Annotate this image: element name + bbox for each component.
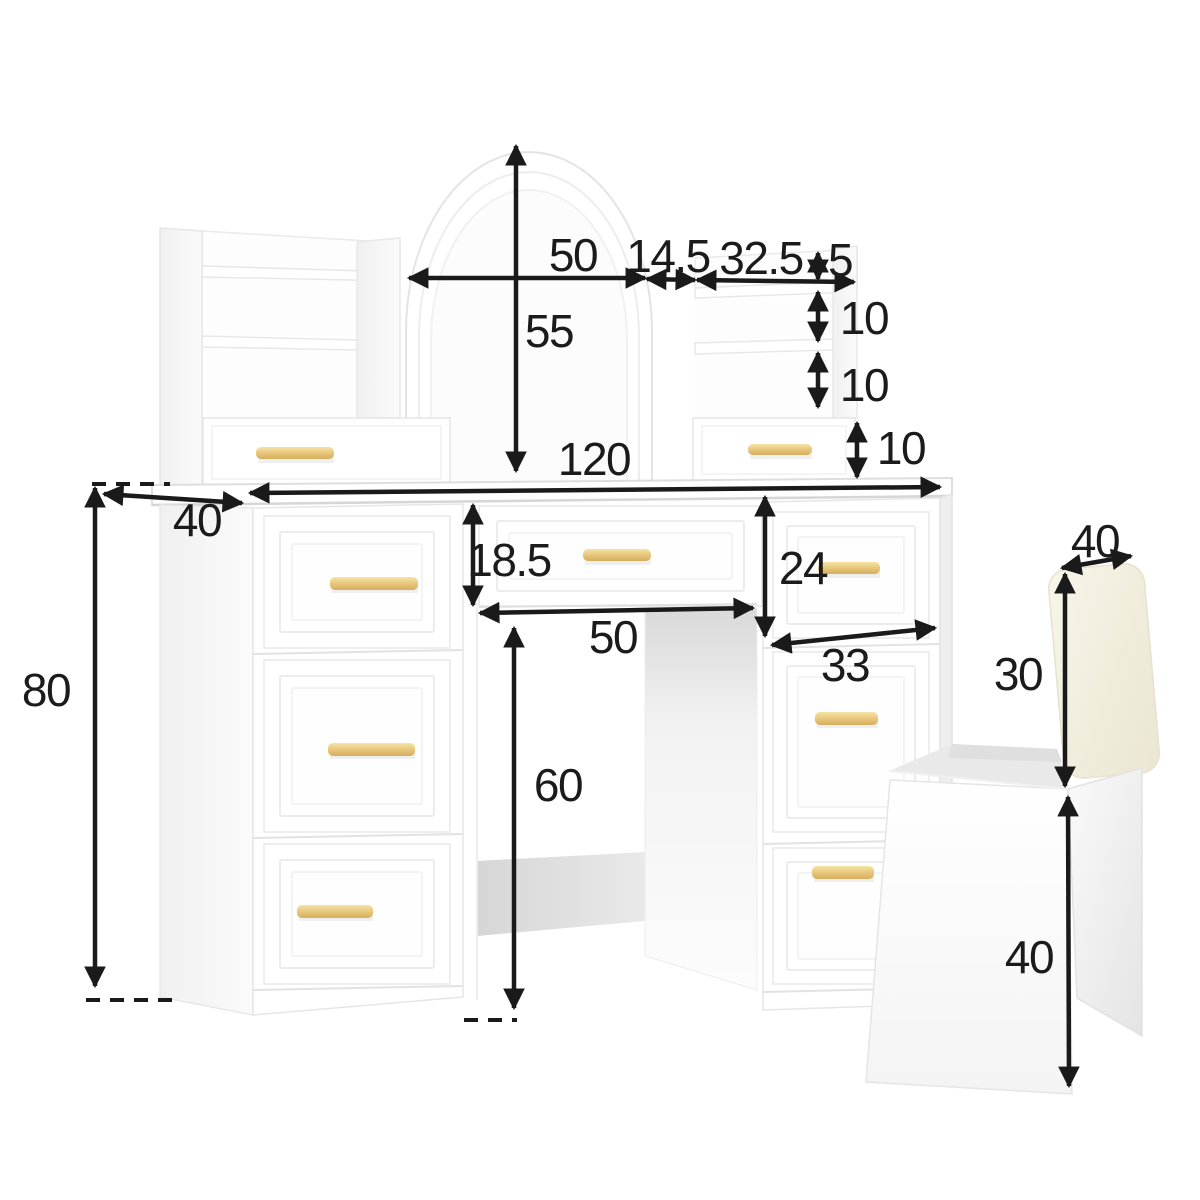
label-right-shelf-width: 32.5 bbox=[719, 235, 803, 281]
label-shelf-gap-upper: 10 bbox=[840, 295, 888, 341]
drawer-handle bbox=[748, 444, 812, 455]
label-desktop-depth: 40 bbox=[173, 497, 221, 543]
label-shelf-gap-lower: 10 bbox=[840, 362, 888, 408]
left-hutch-shelf bbox=[202, 336, 357, 350]
left-pedestal bbox=[160, 504, 463, 1015]
left-hutch-compartment bbox=[202, 347, 357, 417]
label-hutch-drawer-height: 10 bbox=[877, 425, 925, 471]
drawer-handle bbox=[818, 562, 880, 574]
drawer bbox=[264, 516, 450, 648]
label-seat-depth: 40 bbox=[1071, 518, 1119, 564]
label-mirror-height: 55 bbox=[525, 308, 573, 354]
drawer-handle bbox=[328, 743, 415, 756]
label-desk-height: 80 bbox=[22, 667, 70, 713]
drawer-handle bbox=[812, 866, 874, 879]
left-pedestal-side bbox=[160, 505, 253, 1015]
label-stool-height: 40 bbox=[1005, 934, 1053, 980]
drawer-handle bbox=[330, 577, 418, 590]
label-mirror-width: 50 bbox=[549, 232, 597, 278]
right-pedestal-side-panel bbox=[645, 608, 757, 990]
left-hutch-side-panel bbox=[160, 228, 202, 492]
knee-space bbox=[477, 607, 757, 1017]
left-hutch-divider-panel bbox=[357, 238, 400, 418]
drawer-handle bbox=[815, 712, 878, 725]
diagram-canvas bbox=[0, 0, 1200, 1200]
drawer bbox=[264, 660, 450, 832]
drawer-handle bbox=[583, 549, 651, 561]
label-middle-drawer-height: 18.5 bbox=[467, 537, 551, 583]
label-knee-space-height: 60 bbox=[534, 762, 582, 808]
label-desktop-width: 120 bbox=[558, 436, 630, 482]
dimension-diagram: 50 14.5 32.5 5 10 10 10 55 120 40 80 18.… bbox=[0, 0, 1200, 1200]
label-shelf-top-lip: 5 bbox=[828, 237, 852, 283]
drawer bbox=[264, 844, 450, 984]
drawer-handle bbox=[256, 447, 334, 459]
label-knee-space-width: 50 bbox=[589, 614, 637, 660]
stool-side-face bbox=[1068, 768, 1142, 1036]
right-hutch-compartment bbox=[695, 354, 833, 418]
label-right-pedestal-width: 33 bbox=[821, 642, 869, 688]
left-hutch-compartment bbox=[202, 276, 357, 336]
label-backrest-height: 30 bbox=[994, 651, 1042, 697]
right-hutch-compartment bbox=[695, 298, 833, 343]
drawer-handle bbox=[297, 905, 373, 918]
label-mirror-to-shelf-gap: 14.5 bbox=[626, 233, 710, 279]
arrow-stool-height bbox=[1068, 797, 1069, 1086]
label-side-drawer-height: 24 bbox=[779, 545, 827, 591]
